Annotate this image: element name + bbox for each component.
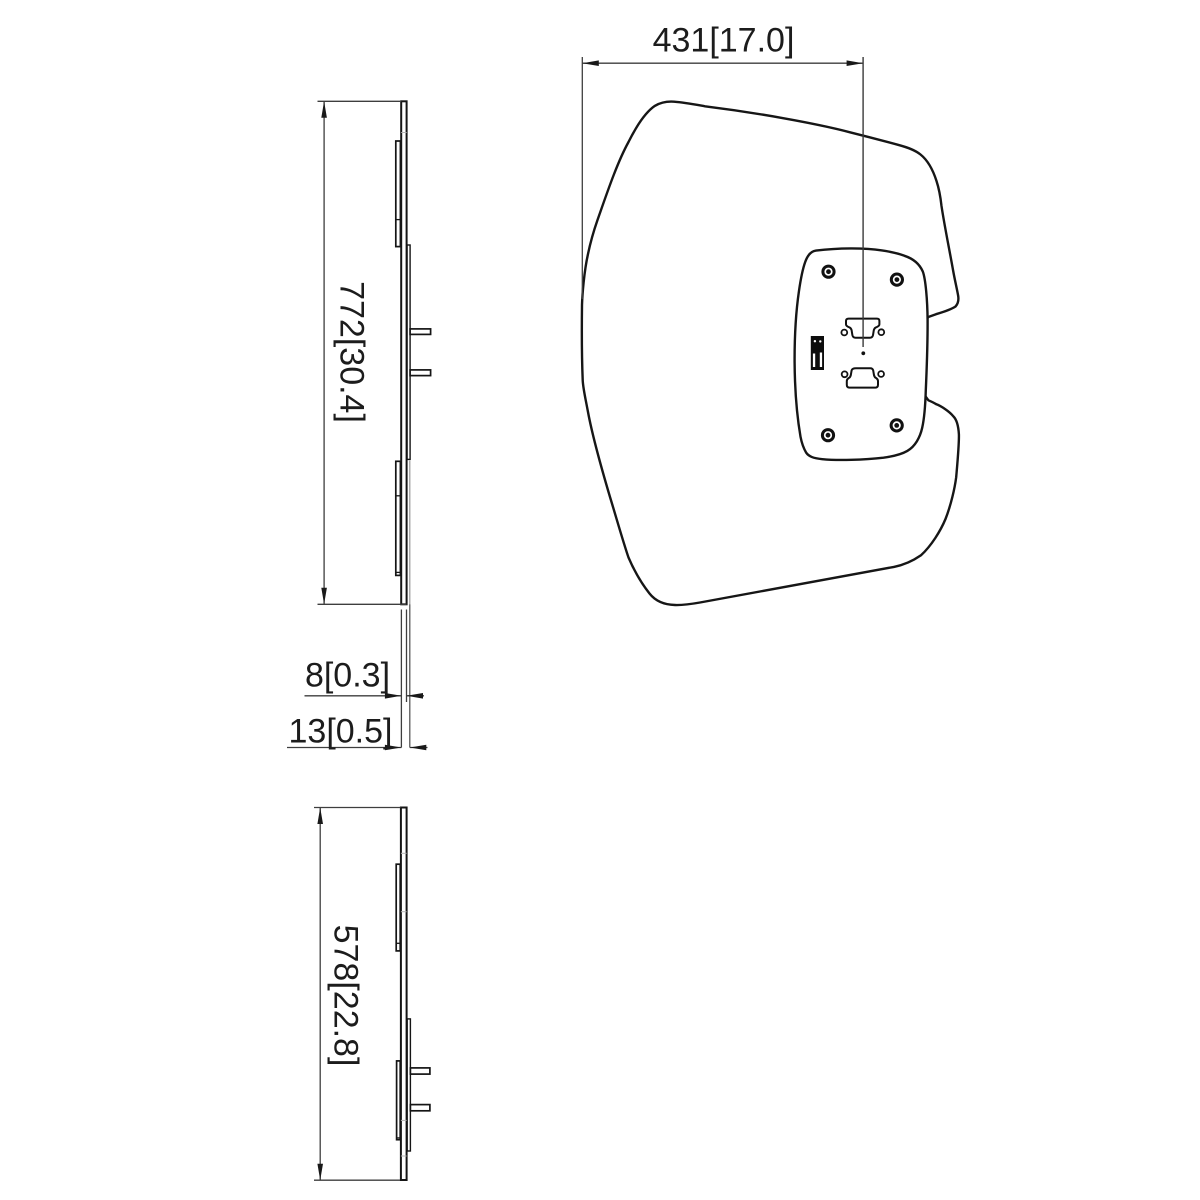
- svg-text:8[0.3]: 8[0.3]: [305, 657, 390, 695]
- svg-text:13[0.5]: 13[0.5]: [289, 713, 393, 751]
- svg-text:578[22.8]: 578[22.8]: [327, 925, 365, 1067]
- svg-text:772[30.4]: 772[30.4]: [333, 281, 371, 423]
- svg-text:431[17.0]: 431[17.0]: [653, 21, 795, 59]
